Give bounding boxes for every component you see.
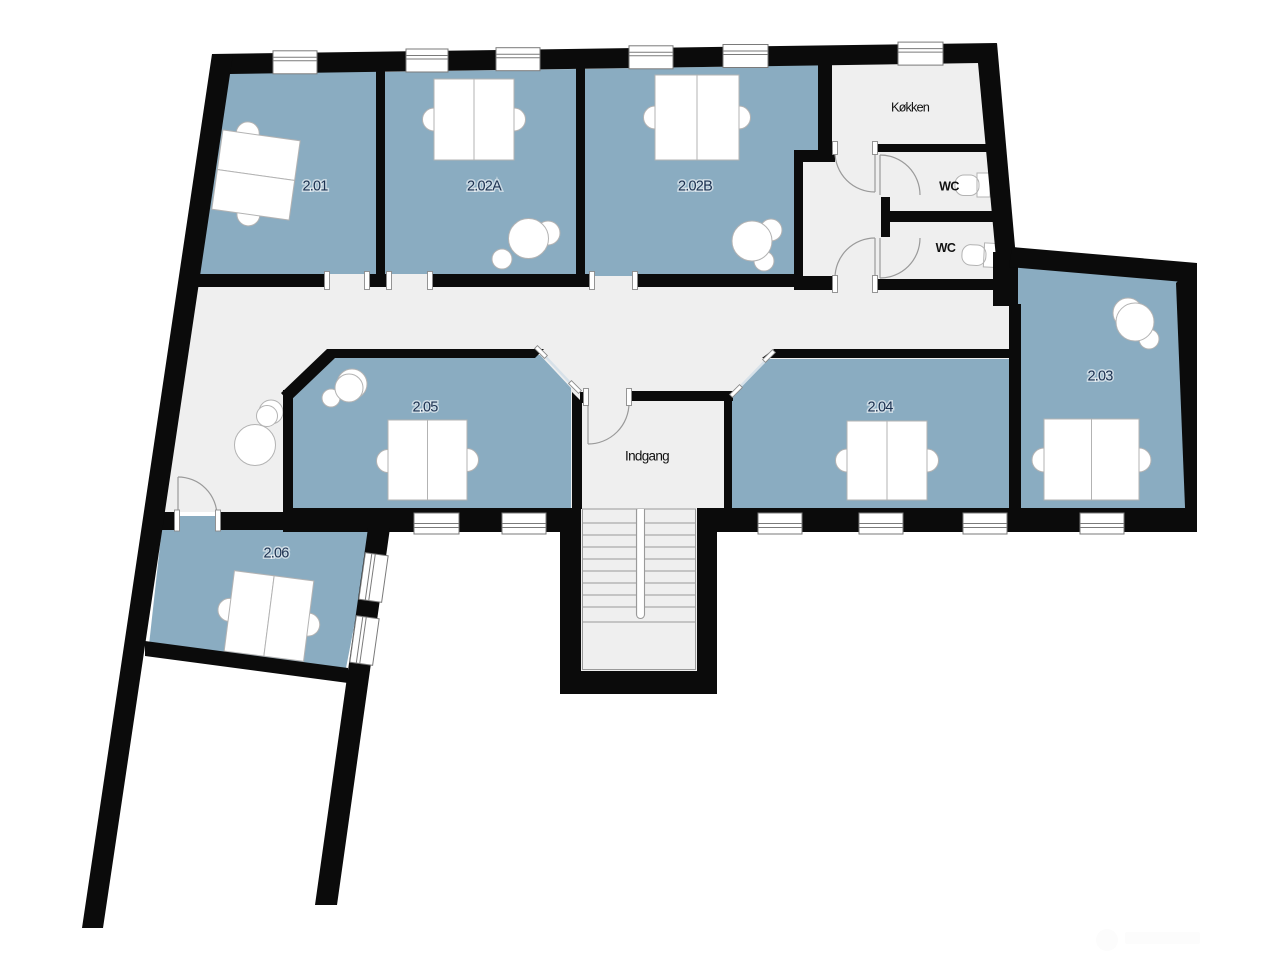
svg-text:2.01: 2.01: [302, 179, 328, 195]
svg-text:2.05: 2.05: [412, 400, 438, 416]
svg-text:WC: WC: [936, 241, 956, 255]
svg-text:Indgang: Indgang: [625, 449, 669, 464]
svg-text:2.04: 2.04: [867, 400, 893, 416]
svg-text:2.02A: 2.02A: [467, 179, 502, 195]
svg-text:2.02B: 2.02B: [678, 179, 712, 195]
svg-text:WC: WC: [939, 180, 959, 194]
svg-text:2.06: 2.06: [263, 546, 289, 562]
svg-text:Køkken: Køkken: [891, 100, 930, 115]
svg-text:2.03: 2.03: [1087, 369, 1113, 385]
